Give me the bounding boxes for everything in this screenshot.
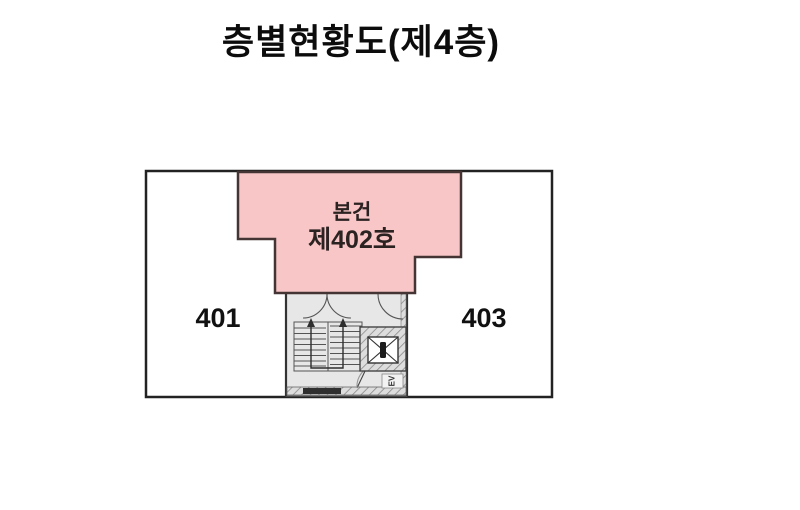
unit-403-label: 403 (461, 303, 506, 333)
unit-402-label-line2: 제402호 (308, 226, 396, 254)
door-threshold (303, 388, 341, 394)
elevator-mark (380, 342, 386, 358)
elevator-label: EV (388, 375, 397, 386)
floor-plan: EV 본건 제402호 401 403 (0, 0, 800, 510)
unit-401-label: 401 (195, 303, 240, 333)
unit-402-label-line1: 본건 (333, 201, 372, 224)
stairwell-core: EV (286, 293, 407, 396)
floor-plan-page: 층별현황도(제4층) (0, 0, 800, 510)
